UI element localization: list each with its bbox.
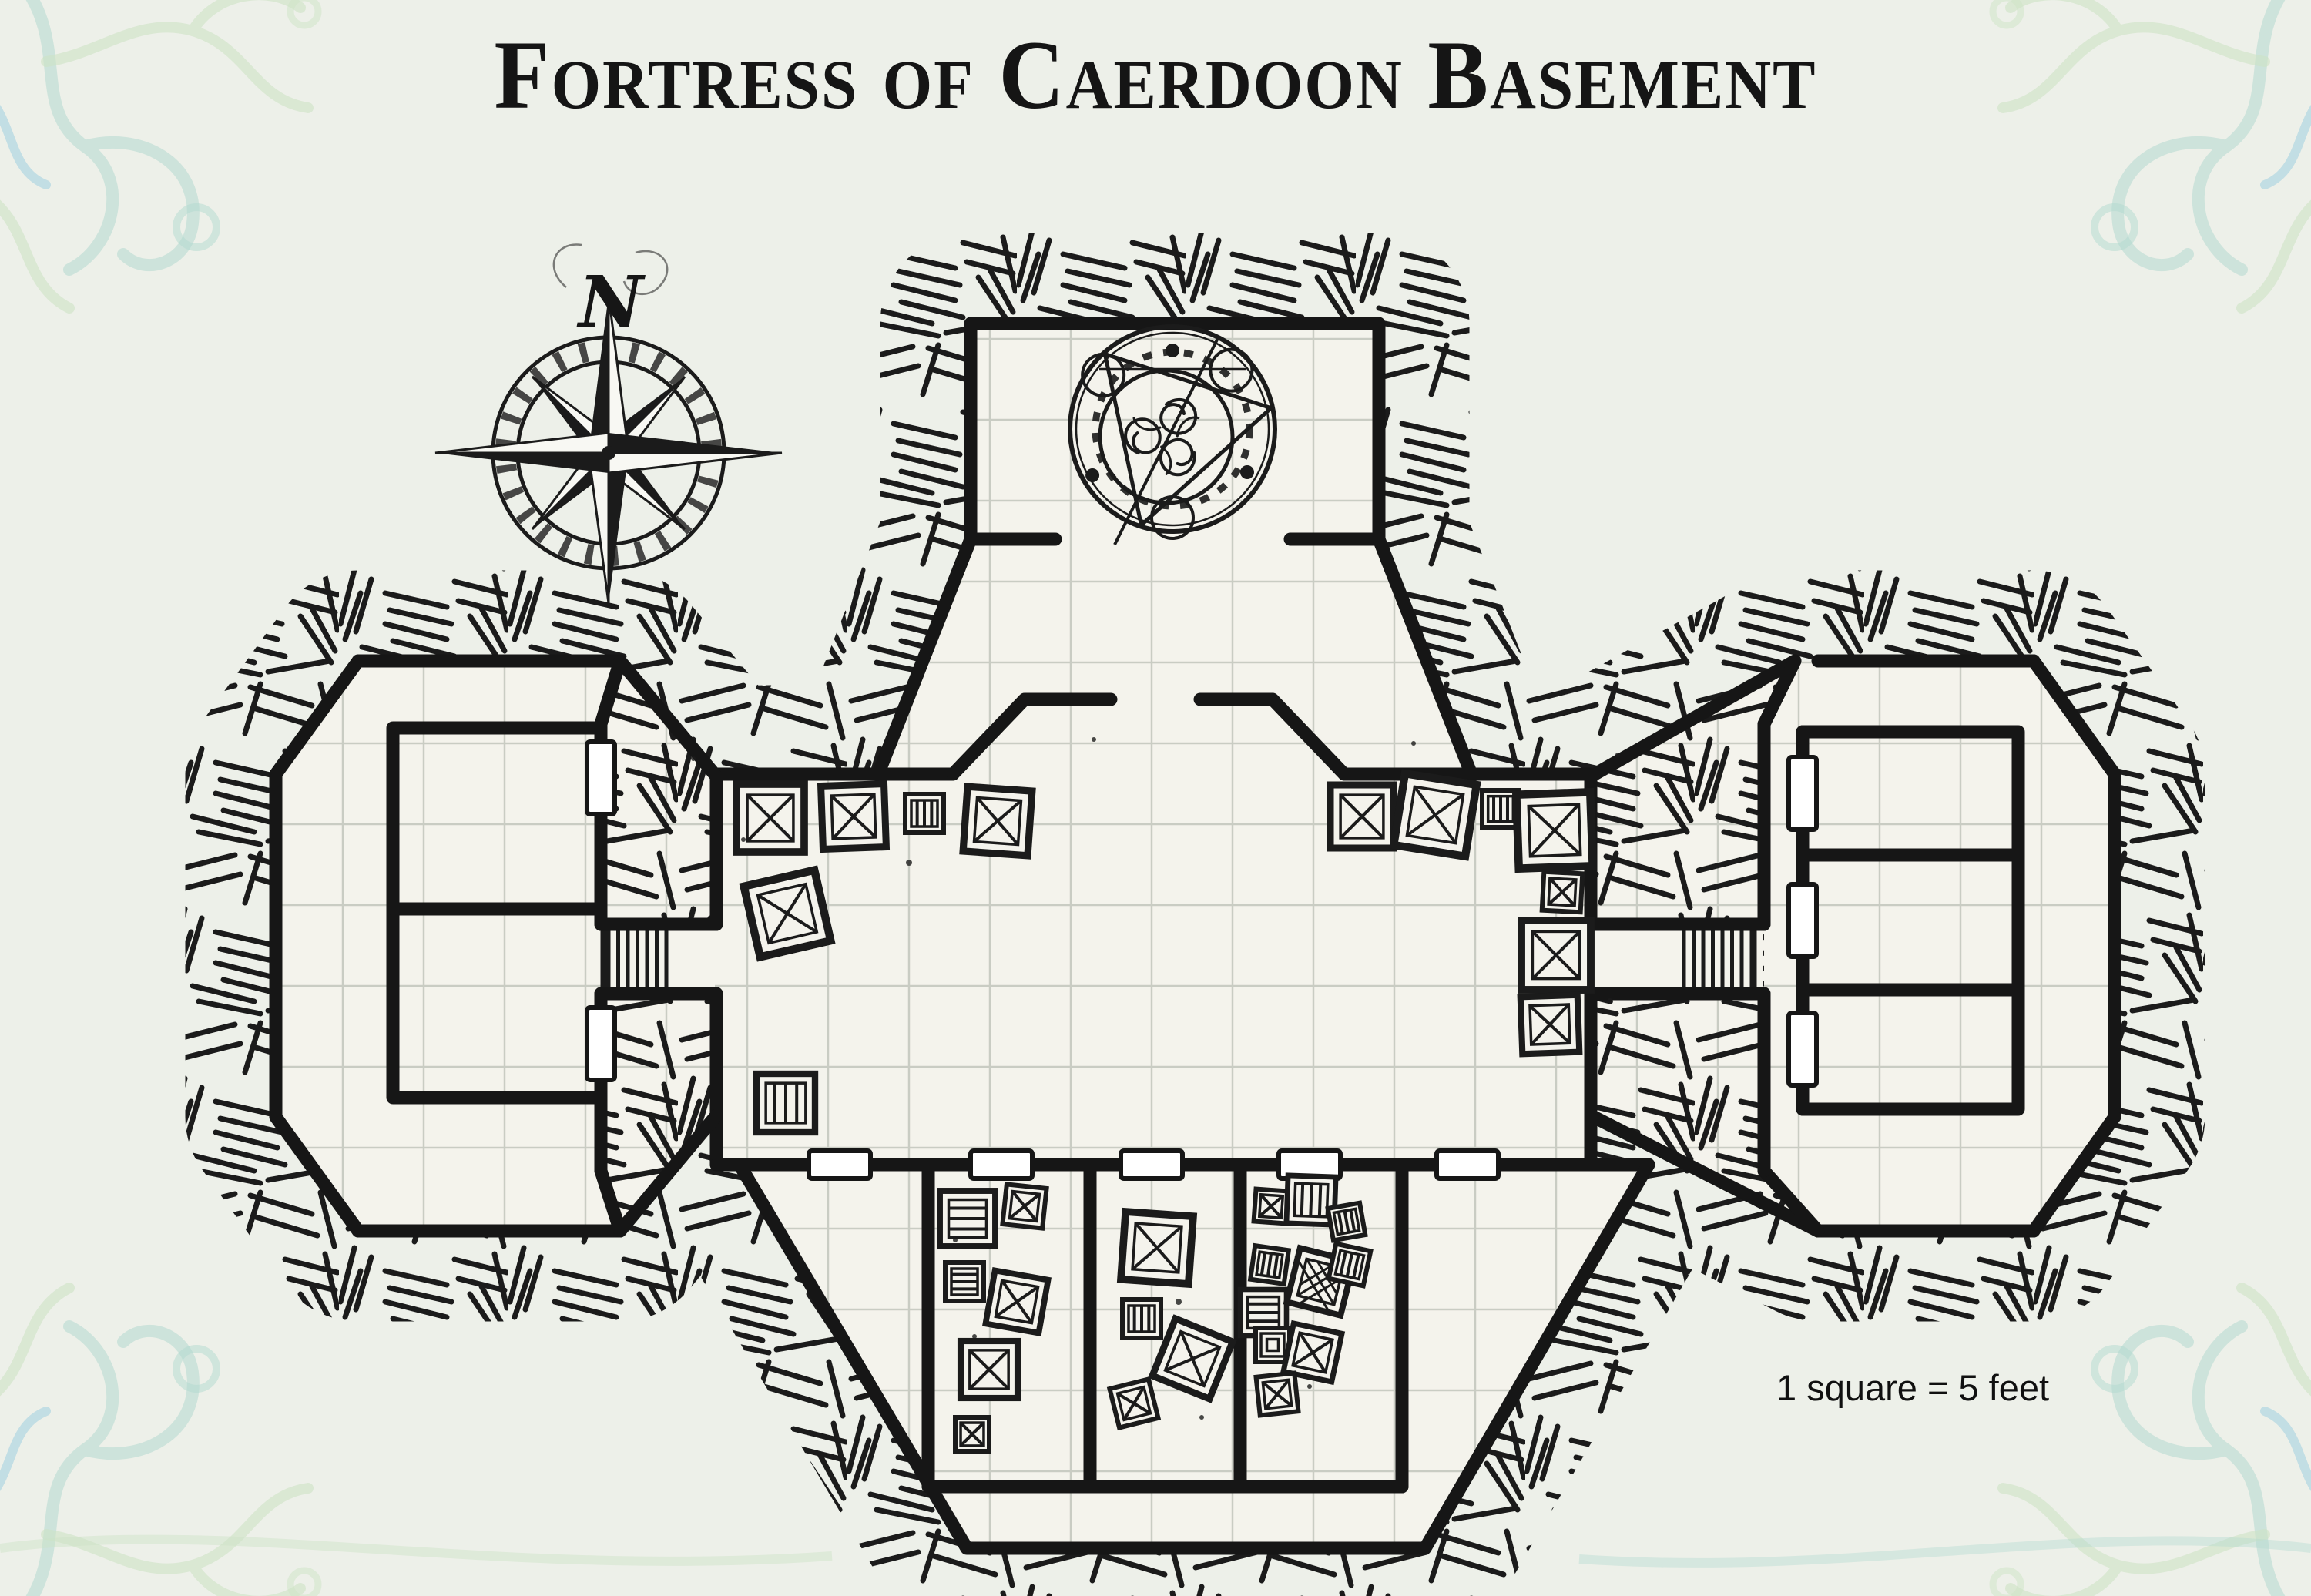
door: [1437, 1151, 1498, 1179]
crate-slat-v: [1329, 1244, 1371, 1286]
crate-slat-v: [1328, 1203, 1366, 1241]
crate-x: [1394, 773, 1477, 857]
map-title: Fortress of Caerdoon Basement: [0, 19, 2311, 132]
crate-slat-h: [945, 1262, 984, 1301]
door: [587, 742, 615, 814]
compass-point: [435, 433, 609, 473]
door: [1789, 884, 1816, 957]
crate-x: [1516, 792, 1592, 868]
crate-x: [961, 1341, 1018, 1398]
crate-x: [1256, 1373, 1299, 1416]
crate-x: [1330, 785, 1394, 848]
crate-x: [1002, 1184, 1046, 1228]
door: [971, 1151, 1032, 1179]
door: [1789, 1013, 1816, 1085]
crate-x: [963, 786, 1032, 856]
dungeon-map: [0, 0, 2311, 1596]
crate-x: [1121, 1212, 1193, 1284]
crate-slat-v: [905, 794, 944, 833]
crate-x: [1254, 1189, 1289, 1224]
page: Fortress of Caerdoon Basement N 1 square…: [0, 0, 2311, 1596]
crate-slat-v: [1122, 1299, 1161, 1338]
crate-x: [1521, 920, 1591, 990]
door: [809, 1151, 870, 1179]
compass-point: [609, 433, 782, 473]
scale-note: 1 square = 5 feet: [1776, 1366, 2049, 1409]
crate-x: [821, 784, 887, 850]
door: [1789, 757, 1816, 830]
crate-x: [1109, 1379, 1158, 1427]
crate-x: [744, 870, 831, 957]
crate-x: [1521, 995, 1580, 1054]
crate-slat-v: [1250, 1246, 1289, 1284]
crate-slat-h: [940, 1191, 995, 1246]
crate-x: [955, 1417, 989, 1451]
door: [1121, 1151, 1182, 1179]
compass-north-label: N: [561, 260, 661, 344]
crate-x: [985, 1270, 1048, 1333]
crate-x: [1542, 872, 1583, 913]
crate-x: [736, 784, 804, 852]
crate-slat-v: [756, 1074, 815, 1132]
door: [587, 1008, 615, 1080]
